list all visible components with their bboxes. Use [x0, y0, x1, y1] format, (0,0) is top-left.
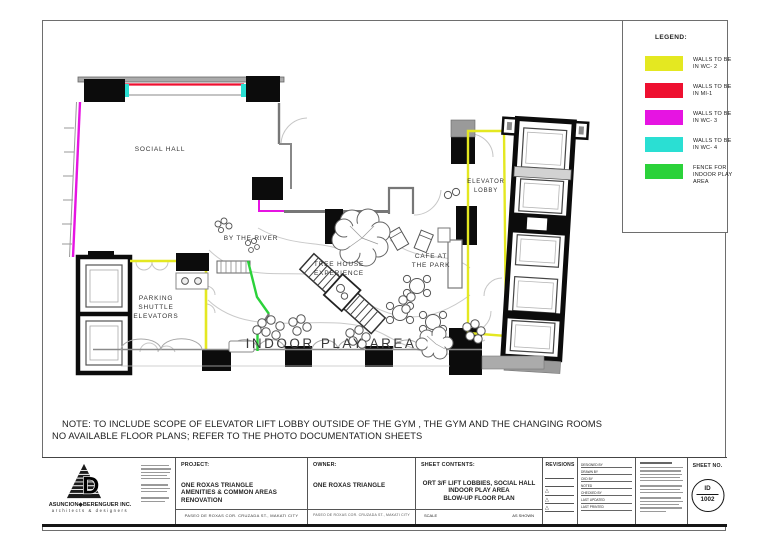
note-text: NOTE: TO INCLUDE SCOPE OF ELEVATOR LIFT …	[52, 419, 612, 442]
field-row: LAST UPDATED	[581, 496, 632, 503]
revision-row: △	[545, 496, 574, 504]
owner-name: ONE ROXAS TRIANGLE	[313, 482, 385, 489]
legal-fineprint-cell	[635, 458, 687, 524]
drawing-sheet: { "colors": { "wc2_yellow": "#e4e821", "…	[0, 0, 768, 543]
sheet-contents-3: BLOW-UP FLOOR PLAN	[416, 495, 542, 502]
field-row: CKD BY	[581, 475, 632, 482]
sheet-no-cell: SHEET NO. ID 1002	[687, 458, 727, 524]
firm-address-fineprint	[141, 463, 171, 504]
legend-swatch-wc3	[645, 110, 683, 125]
project-label: PROJECT:	[181, 462, 209, 468]
revision-row	[545, 471, 574, 479]
label-elevator-lobby-1: ELEVATOR	[467, 179, 504, 185]
legend-item-mi1: WALLS TO BEIN MI-1	[645, 83, 731, 98]
field-row: DESIGNED BY	[581, 461, 632, 468]
note-line-1: NOTE: TO INCLUDE SCOPE OF ELEVATOR LIFT …	[62, 419, 612, 431]
revision-row	[545, 479, 574, 487]
firm-cell: D ASUNCION◆BERENGUER INC. architects & d…	[42, 458, 175, 524]
legend-item-wc4: WALLS TO BEIN WC- 4	[645, 137, 731, 152]
sheet-no-prefix: ID	[692, 485, 723, 492]
legend-title: LEGEND:	[655, 34, 687, 41]
project-address: PASEO DE ROXAS COR. CRUZADA ST., MAKATI …	[176, 513, 307, 518]
label-indoor-play-area: INDOOR PLAY AREA	[246, 336, 417, 351]
firm-logo: D	[65, 462, 103, 500]
legal-fineprint	[640, 462, 683, 512]
project-name-2: AMENITIES & COMMON AREAS RENOVATION	[181, 489, 307, 504]
scale-label: SCALE	[424, 513, 437, 518]
sheet-contents-2: INDOOR PLAY AREA	[416, 487, 542, 494]
label-parking-3: ELEVATORS	[133, 313, 178, 320]
label-cafe-2: THE PARK	[412, 262, 450, 269]
legend-panel: LEGEND: WALLS TO BEIN WC- 2 WALLS TO BEI…	[622, 20, 728, 233]
sheet-contents-label: SHEET CONTENTS:	[421, 462, 475, 468]
legend-item-wc2: WALLS TO BEIN WC- 2	[645, 56, 731, 71]
label-cafe-1: CAFE AT	[415, 253, 447, 260]
label-tree-house-1: TREE HOUSE	[314, 261, 364, 268]
label-by-the-river: BY THE RIVER	[224, 235, 279, 242]
field-row: DRAWN BY	[581, 468, 632, 475]
revisions-label: REVISIONS	[543, 462, 577, 468]
project-cell: PROJECT: ONE ROXAS TRIANGLE AMENITIES & …	[175, 458, 307, 524]
sheet-no-label: SHEET NO.	[688, 463, 727, 469]
legend-swatch-wc2	[645, 56, 683, 71]
signoff-fields-cell: DESIGNED BY DRAWN BY CKD BY NOTED CHECKE…	[577, 458, 635, 524]
scale-value: AS SHOWN	[512, 513, 534, 518]
sheet-contents-cell: SHEET CONTENTS: ORT 3/F LIFT LOBBIES, SO…	[415, 458, 542, 524]
tree-large	[332, 209, 390, 266]
legend-item-wc3: WALLS TO BEIN WC- 3	[645, 110, 731, 125]
label-parking-1: PARKING	[139, 295, 173, 302]
column-cap	[451, 120, 475, 137]
label-parking-2: SHUTTLE	[138, 304, 173, 311]
svg-text:D: D	[82, 472, 99, 499]
legend-swatch-wc4	[645, 137, 683, 152]
label-social-hall: SOCIAL HALL	[135, 146, 185, 153]
revisions-cell: REVISIONS △ △ △	[542, 458, 577, 524]
lower-wall-band	[482, 356, 544, 369]
firm-subtitle: architects & designers	[43, 508, 137, 513]
revision-row: △	[545, 504, 574, 512]
field-row: LAST PRINTED	[581, 504, 632, 511]
field-row: NOTED	[581, 482, 632, 489]
title-block: D ASUNCION◆BERENGUER INC. architects & d…	[42, 457, 727, 527]
sheet-contents-1: ORT 3/F LIFT LOBBIES, SOCIAL HALL	[416, 480, 542, 487]
label-tree-house-2: EXPERIENCE	[314, 270, 364, 277]
owner-cell: OWNER: ONE ROXAS TRIANGLE PASEO DE ROXAS…	[307, 458, 415, 524]
revision-row: △	[545, 487, 574, 495]
by-the-river-fixtures	[215, 218, 259, 273]
note-line-2: NO AVAILABLE FLOOR PLANS; REFER TO THE P…	[52, 431, 612, 443]
project-name-1: ONE ROXAS TRIANGLE	[181, 482, 307, 489]
sheet-no-badge: ID 1002	[691, 479, 724, 512]
legend-swatch-mi1	[645, 83, 683, 98]
label-elevator-lobby-2: LOBBY	[474, 188, 498, 194]
legend-swatch-fence	[645, 164, 683, 179]
field-row: CHECKED BY	[581, 489, 632, 496]
owner-label: OWNER:	[313, 462, 337, 468]
sheet-no-number: 1002	[692, 496, 723, 503]
legend-item-fence: FENCE FORINDOOR PLAYAREA	[645, 164, 732, 185]
owner-address: PASEO DE ROXAS COR. CRUZADA ST., MAKATI …	[308, 513, 415, 517]
cafe-fixtures	[386, 227, 462, 332]
